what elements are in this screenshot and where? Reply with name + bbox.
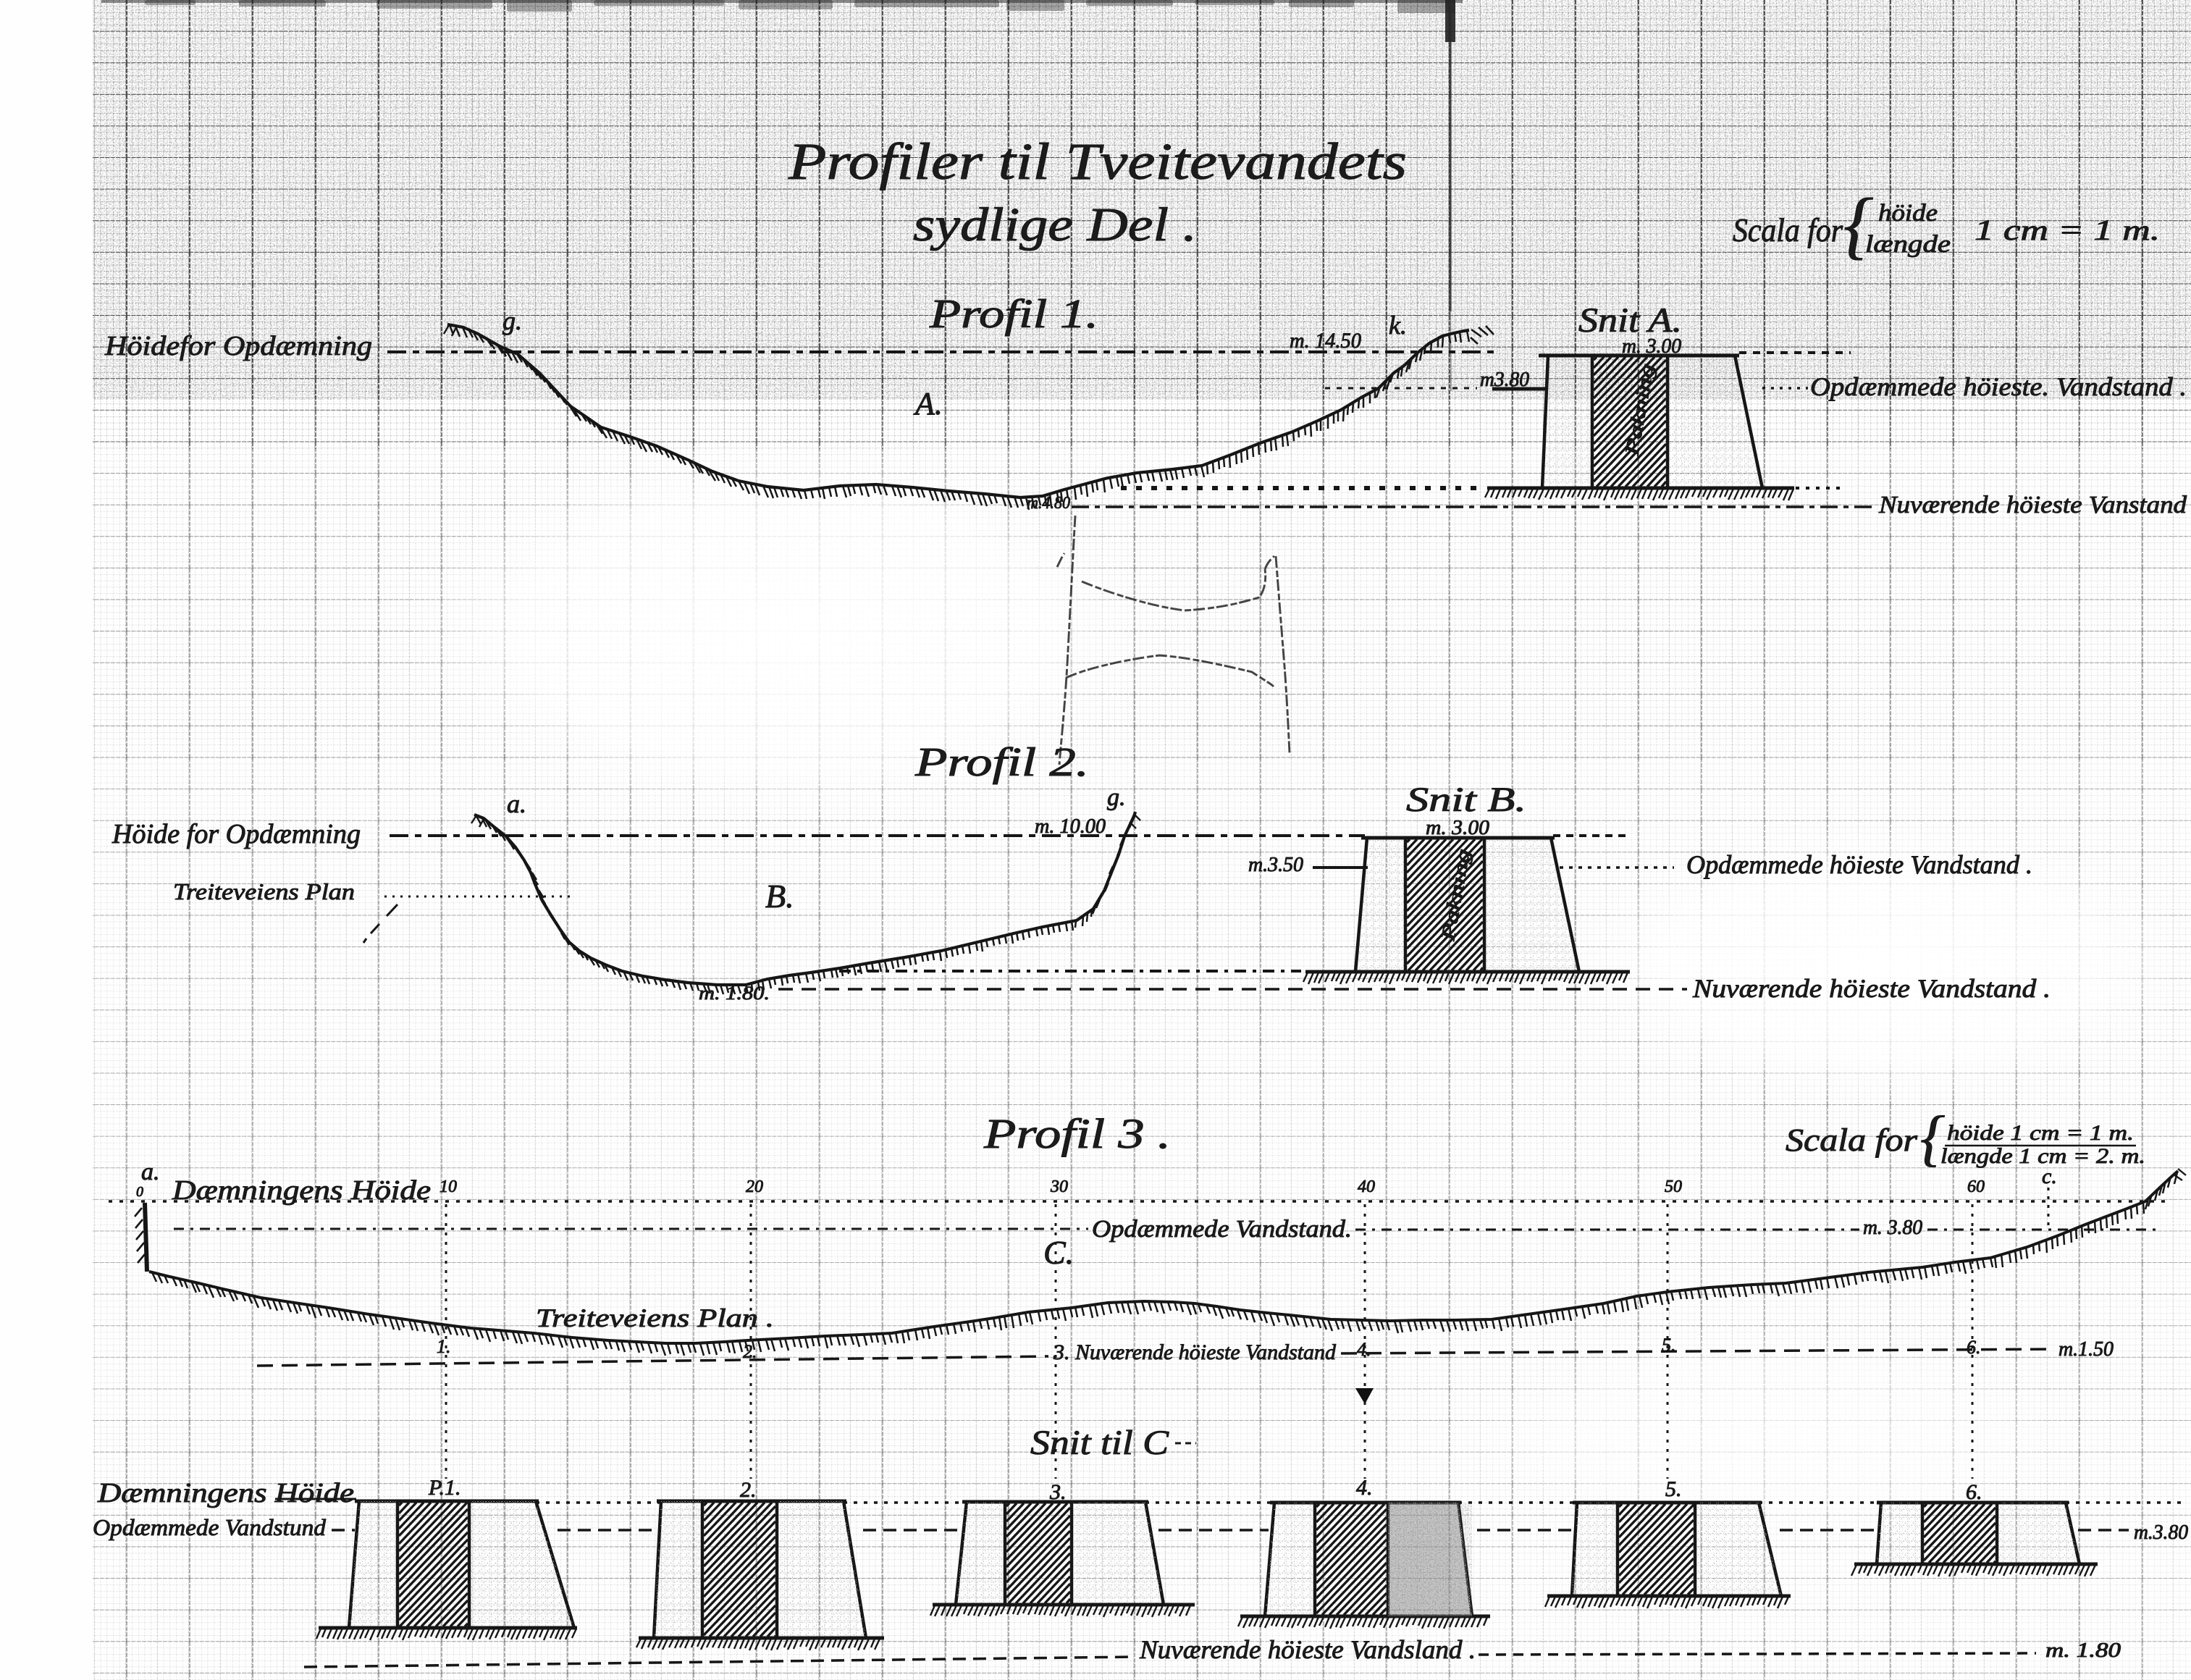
svg-text:g.: g.: [1107, 784, 1126, 811]
svg-text:Nuværende höieste Vanstand: Nuværende höieste Vanstand: [1878, 492, 2187, 518]
svg-text:A.: A.: [913, 386, 943, 421]
svg-text:Profil 2.: Profil 2.: [914, 740, 1089, 785]
svg-text:3.: 3.: [1049, 1480, 1067, 1504]
svg-text:m.1.50: m.1.50: [2058, 1338, 2114, 1361]
svg-text:Snit B.: Snit B.: [1406, 781, 1526, 819]
svg-text:m. 1.80: m. 1.80: [2045, 1639, 2121, 1662]
svg-text:Snit A.: Snit A.: [1578, 301, 1682, 340]
svg-text:Nuværende höieste Vandsland .: Nuværende höieste Vandsland .: [1139, 1635, 1476, 1664]
svg-text:sydlige Del .: sydlige Del .: [913, 198, 1197, 251]
svg-text:1.: 1.: [437, 1336, 451, 1357]
svg-text:Profil 3 .: Profil 3 .: [983, 1110, 1171, 1157]
svg-text:Treiteveiens Plan .: Treiteveiens Plan .: [536, 1303, 774, 1332]
svg-text:c.: c.: [2042, 1164, 2057, 1188]
svg-text:Dæmningens Höide: Dæmningens Höide: [97, 1478, 354, 1508]
svg-text:m.3.50: m.3.50: [1248, 854, 1303, 876]
svg-text:1 cm = 1 m.: 1 cm = 1 m.: [1975, 214, 2160, 246]
svg-text:m. 3.80: m. 3.80: [1863, 1217, 1922, 1239]
svg-text:höide 1 cm = 1 m.: höide 1 cm = 1 m.: [1947, 1121, 2134, 1145]
svg-text:6.: 6.: [1967, 1337, 1981, 1358]
svg-text:Treiteveiens Plan: Treiteveiens Plan: [173, 878, 355, 904]
svg-text:Profiler til Tveitevandets: Profiler til Tveitevandets: [788, 133, 1407, 190]
svg-text:2.: 2.: [743, 1341, 757, 1362]
svg-text:3. Nuværende höieste Vandstand: 3. Nuværende höieste Vandstand: [1053, 1340, 1337, 1364]
svg-text:Opdæmmede höieste. Vandstand .: Opdæmmede höieste. Vandstand .: [1810, 372, 2187, 401]
svg-text:k.: k.: [1389, 311, 1407, 340]
svg-text:5.: 5.: [1662, 1335, 1676, 1356]
svg-text:30: 30: [1050, 1177, 1068, 1196]
svg-text:B.: B.: [765, 878, 794, 915]
svg-text:Opdæmmede Vandstund: Opdæmmede Vandstund: [93, 1514, 327, 1540]
svg-text:5.: 5.: [1665, 1477, 1682, 1501]
svg-text:höide: höide: [1878, 200, 1938, 227]
svg-text:Höidefor Opdæmning: Höidefor Opdæmning: [104, 331, 372, 361]
svg-text:2.: 2.: [740, 1478, 757, 1502]
svg-text:Nuværende höieste Vandstand .: Nuværende höieste Vandstand .: [1692, 974, 2051, 1003]
svg-text:længde: længde: [1865, 231, 1951, 258]
svg-text:Opdæmmede höieste Vandstand .: Opdæmmede höieste Vandstand .: [1686, 850, 2032, 879]
svg-text:Snit til C: Snit til C: [1030, 1424, 1169, 1462]
svg-text:60: 60: [1967, 1177, 1985, 1196]
svg-text:Profil 1.: Profil 1.: [929, 292, 1098, 337]
svg-text:g.: g.: [502, 306, 522, 335]
svg-text:40: 40: [1358, 1177, 1375, 1196]
svg-text:50: 50: [1665, 1177, 1682, 1196]
svg-text:Höide for Opdæmning: Höide for Opdæmning: [112, 819, 361, 849]
svg-text:C.: C.: [1043, 1234, 1074, 1271]
svg-text:m. 10.00: m. 10.00: [1035, 815, 1106, 838]
svg-text:P.1.: P.1.: [428, 1476, 461, 1500]
svg-text:Scala for: Scala for: [1733, 211, 1843, 248]
svg-text:Opdæmmede Vandstand.: Opdæmmede Vandstand.: [1092, 1216, 1352, 1243]
svg-text:0: 0: [136, 1184, 143, 1200]
svg-text:4.: 4.: [1356, 1476, 1373, 1500]
svg-text:m. 3.00: m. 3.00: [1426, 817, 1489, 839]
svg-text:20: 20: [746, 1177, 763, 1196]
svg-text:a.: a.: [507, 789, 526, 818]
svg-text:6.: 6.: [1966, 1480, 1982, 1504]
svg-text:10: 10: [440, 1177, 457, 1196]
svg-text:m.4.80: m.4.80: [1027, 494, 1070, 513]
svg-text:m.3.80: m.3.80: [2134, 1521, 2188, 1544]
svg-text:Scala for: Scala for: [1786, 1122, 1918, 1158]
svg-text:m. 14.50: m. 14.50: [1290, 329, 1361, 353]
svg-text:a.: a.: [141, 1159, 160, 1185]
svg-text:m. 1.80.: m. 1.80.: [699, 983, 770, 1004]
